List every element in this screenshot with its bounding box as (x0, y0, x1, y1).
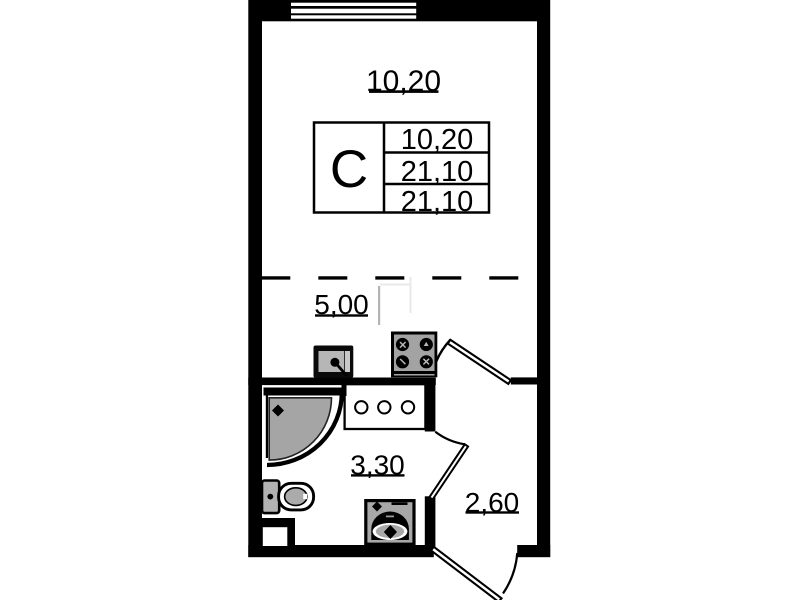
svg-text:10,20: 10,20 (401, 124, 474, 156)
svg-text:21,10: 21,10 (401, 186, 474, 218)
svg-text:С: С (330, 140, 368, 199)
svg-text:21,10: 21,10 (401, 156, 474, 188)
svg-text:10,20: 10,20 (366, 65, 441, 98)
